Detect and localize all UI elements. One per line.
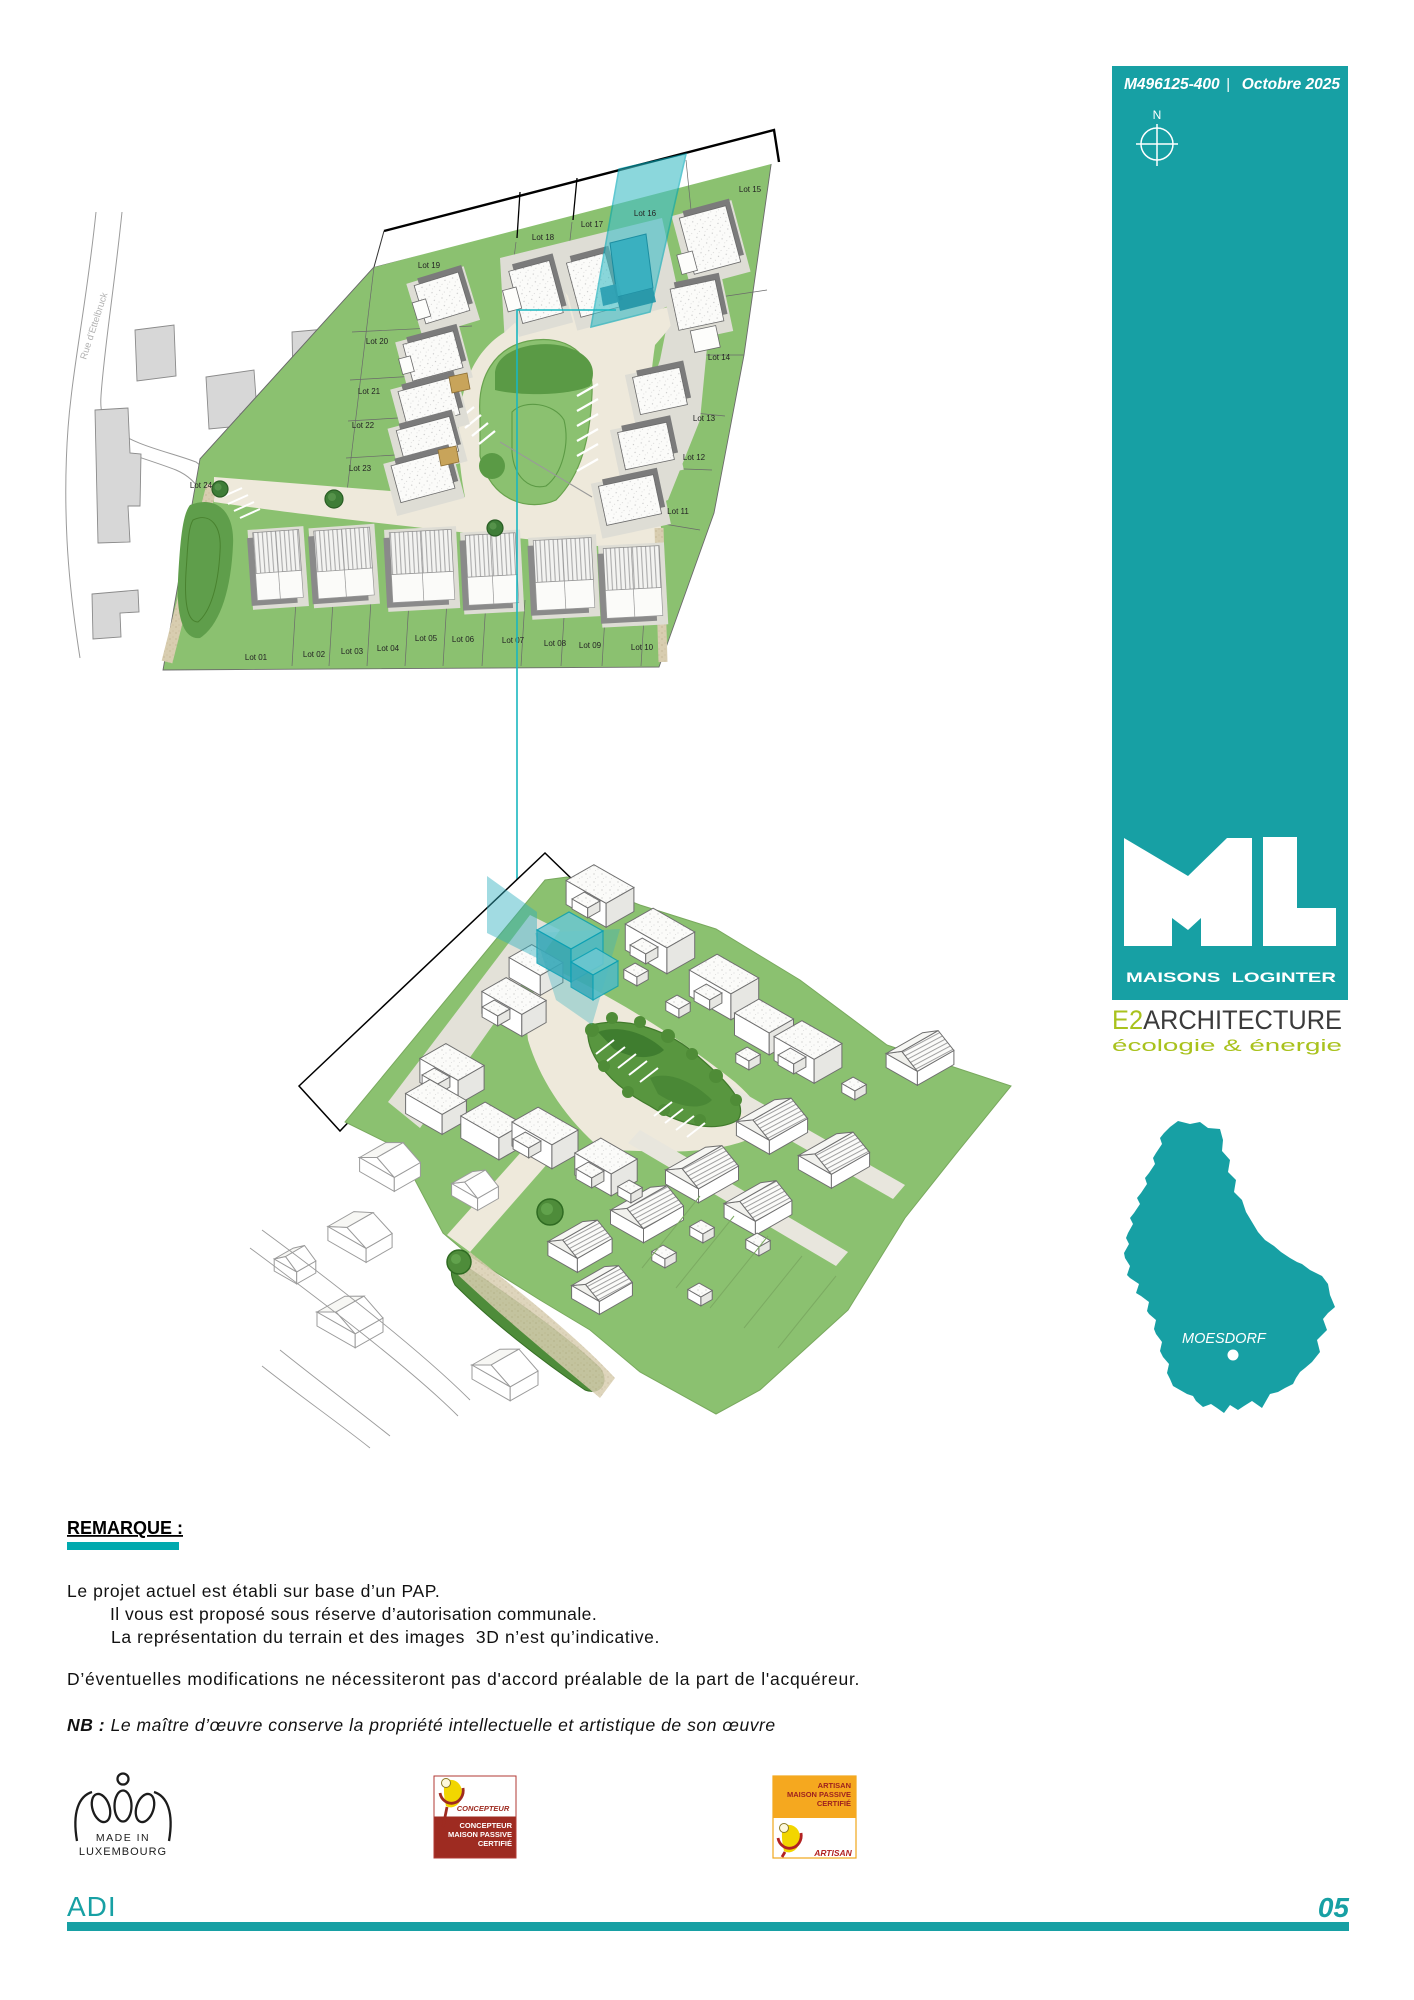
svg-text:ARTISAN: ARTISAN [813, 1848, 852, 1858]
svg-text:E2ARCHITECTURE: E2ARCHITECTURE [1112, 1005, 1342, 1035]
svg-text:Lot 05: Lot 05 [415, 634, 438, 643]
svg-text:Le projet actuel est établi su: Le projet actuel est établi sur base d’u… [67, 1581, 440, 1601]
svg-text:CERTIFIÉ: CERTIFIÉ [817, 1799, 851, 1808]
svg-text:Lot 08: Lot 08 [544, 639, 567, 648]
svg-text:Lot 12: Lot 12 [683, 453, 706, 462]
svg-text:Lot 15: Lot 15 [739, 185, 762, 194]
svg-text:Lot 24: Lot 24 [190, 481, 213, 490]
svg-text:Lot 20: Lot 20 [366, 337, 389, 346]
svg-text:Lot 16: Lot 16 [634, 209, 657, 218]
svg-text:05: 05 [1318, 1892, 1350, 1923]
svg-text:Lot 13: Lot 13 [693, 414, 716, 423]
svg-text:CONCEPTEUR: CONCEPTEUR [459, 1821, 512, 1830]
svg-text:MADE IN: MADE IN [96, 1832, 150, 1844]
svg-text:Lot 19: Lot 19 [418, 261, 441, 270]
svg-text:Lot 02: Lot 02 [303, 650, 326, 659]
svg-text:écologie & énergie: écologie & énergie [1112, 1036, 1342, 1055]
svg-text:Il vous est proposé sous réser: Il vous est proposé sous réserve d’autor… [110, 1604, 597, 1624]
svg-text:MOESDORF: MOESDORF [1182, 1331, 1267, 1347]
svg-text:La représentation du terrain e: La représentation du terrain et des imag… [111, 1627, 660, 1647]
svg-text:Lot 06: Lot 06 [452, 635, 475, 644]
svg-text:Lot 17: Lot 17 [581, 220, 604, 229]
svg-text:MAISON PASSIVE: MAISON PASSIVE [448, 1830, 512, 1839]
svg-text:NB : Le maître d’œuvre conserv: NB : Le maître d’œuvre conserve la propr… [67, 1715, 776, 1735]
svg-text:Lot 18: Lot 18 [532, 233, 555, 242]
svg-text:CERTIFIÉ: CERTIFIÉ [478, 1839, 512, 1848]
svg-text:CONCEPTEUR: CONCEPTEUR [457, 1804, 510, 1813]
svg-text:Lot 01: Lot 01 [245, 653, 268, 662]
svg-text:Lot 11: Lot 11 [667, 507, 689, 516]
svg-text:MAISON PASSIVE: MAISON PASSIVE [787, 1790, 851, 1799]
svg-text:Lot 21: Lot 21 [358, 387, 381, 396]
svg-text:Lot 22: Lot 22 [352, 421, 375, 430]
svg-text:ARTISAN: ARTISAN [818, 1781, 851, 1790]
svg-text:Lot 04: Lot 04 [377, 644, 400, 653]
svg-text:Lot 14: Lot 14 [708, 353, 731, 362]
svg-text:MAISONS LOGINTER: MAISONS LOGINTER [1126, 969, 1336, 985]
svg-text:Lot 03: Lot 03 [341, 647, 364, 656]
svg-text:LUXEMBOURG: LUXEMBOURG [79, 1846, 167, 1858]
svg-text:Octobre 2025: Octobre 2025 [1242, 76, 1341, 93]
svg-text:REMARQUE :: REMARQUE : [67, 1518, 183, 1538]
svg-text:|: | [1226, 76, 1230, 93]
svg-text:N: N [1153, 108, 1162, 122]
svg-text:Lot 23: Lot 23 [349, 464, 372, 473]
svg-text:M496125-400: M496125-400 [1124, 76, 1220, 93]
svg-text:Lot 09: Lot 09 [579, 641, 602, 650]
svg-text:ADI: ADI [67, 1891, 117, 1922]
svg-text:D’éventuelles modifications ne: D’éventuelles modifications ne nécessite… [67, 1669, 860, 1689]
svg-text:Lot 07: Lot 07 [502, 636, 525, 645]
svg-text:Lot 10: Lot 10 [631, 643, 654, 652]
